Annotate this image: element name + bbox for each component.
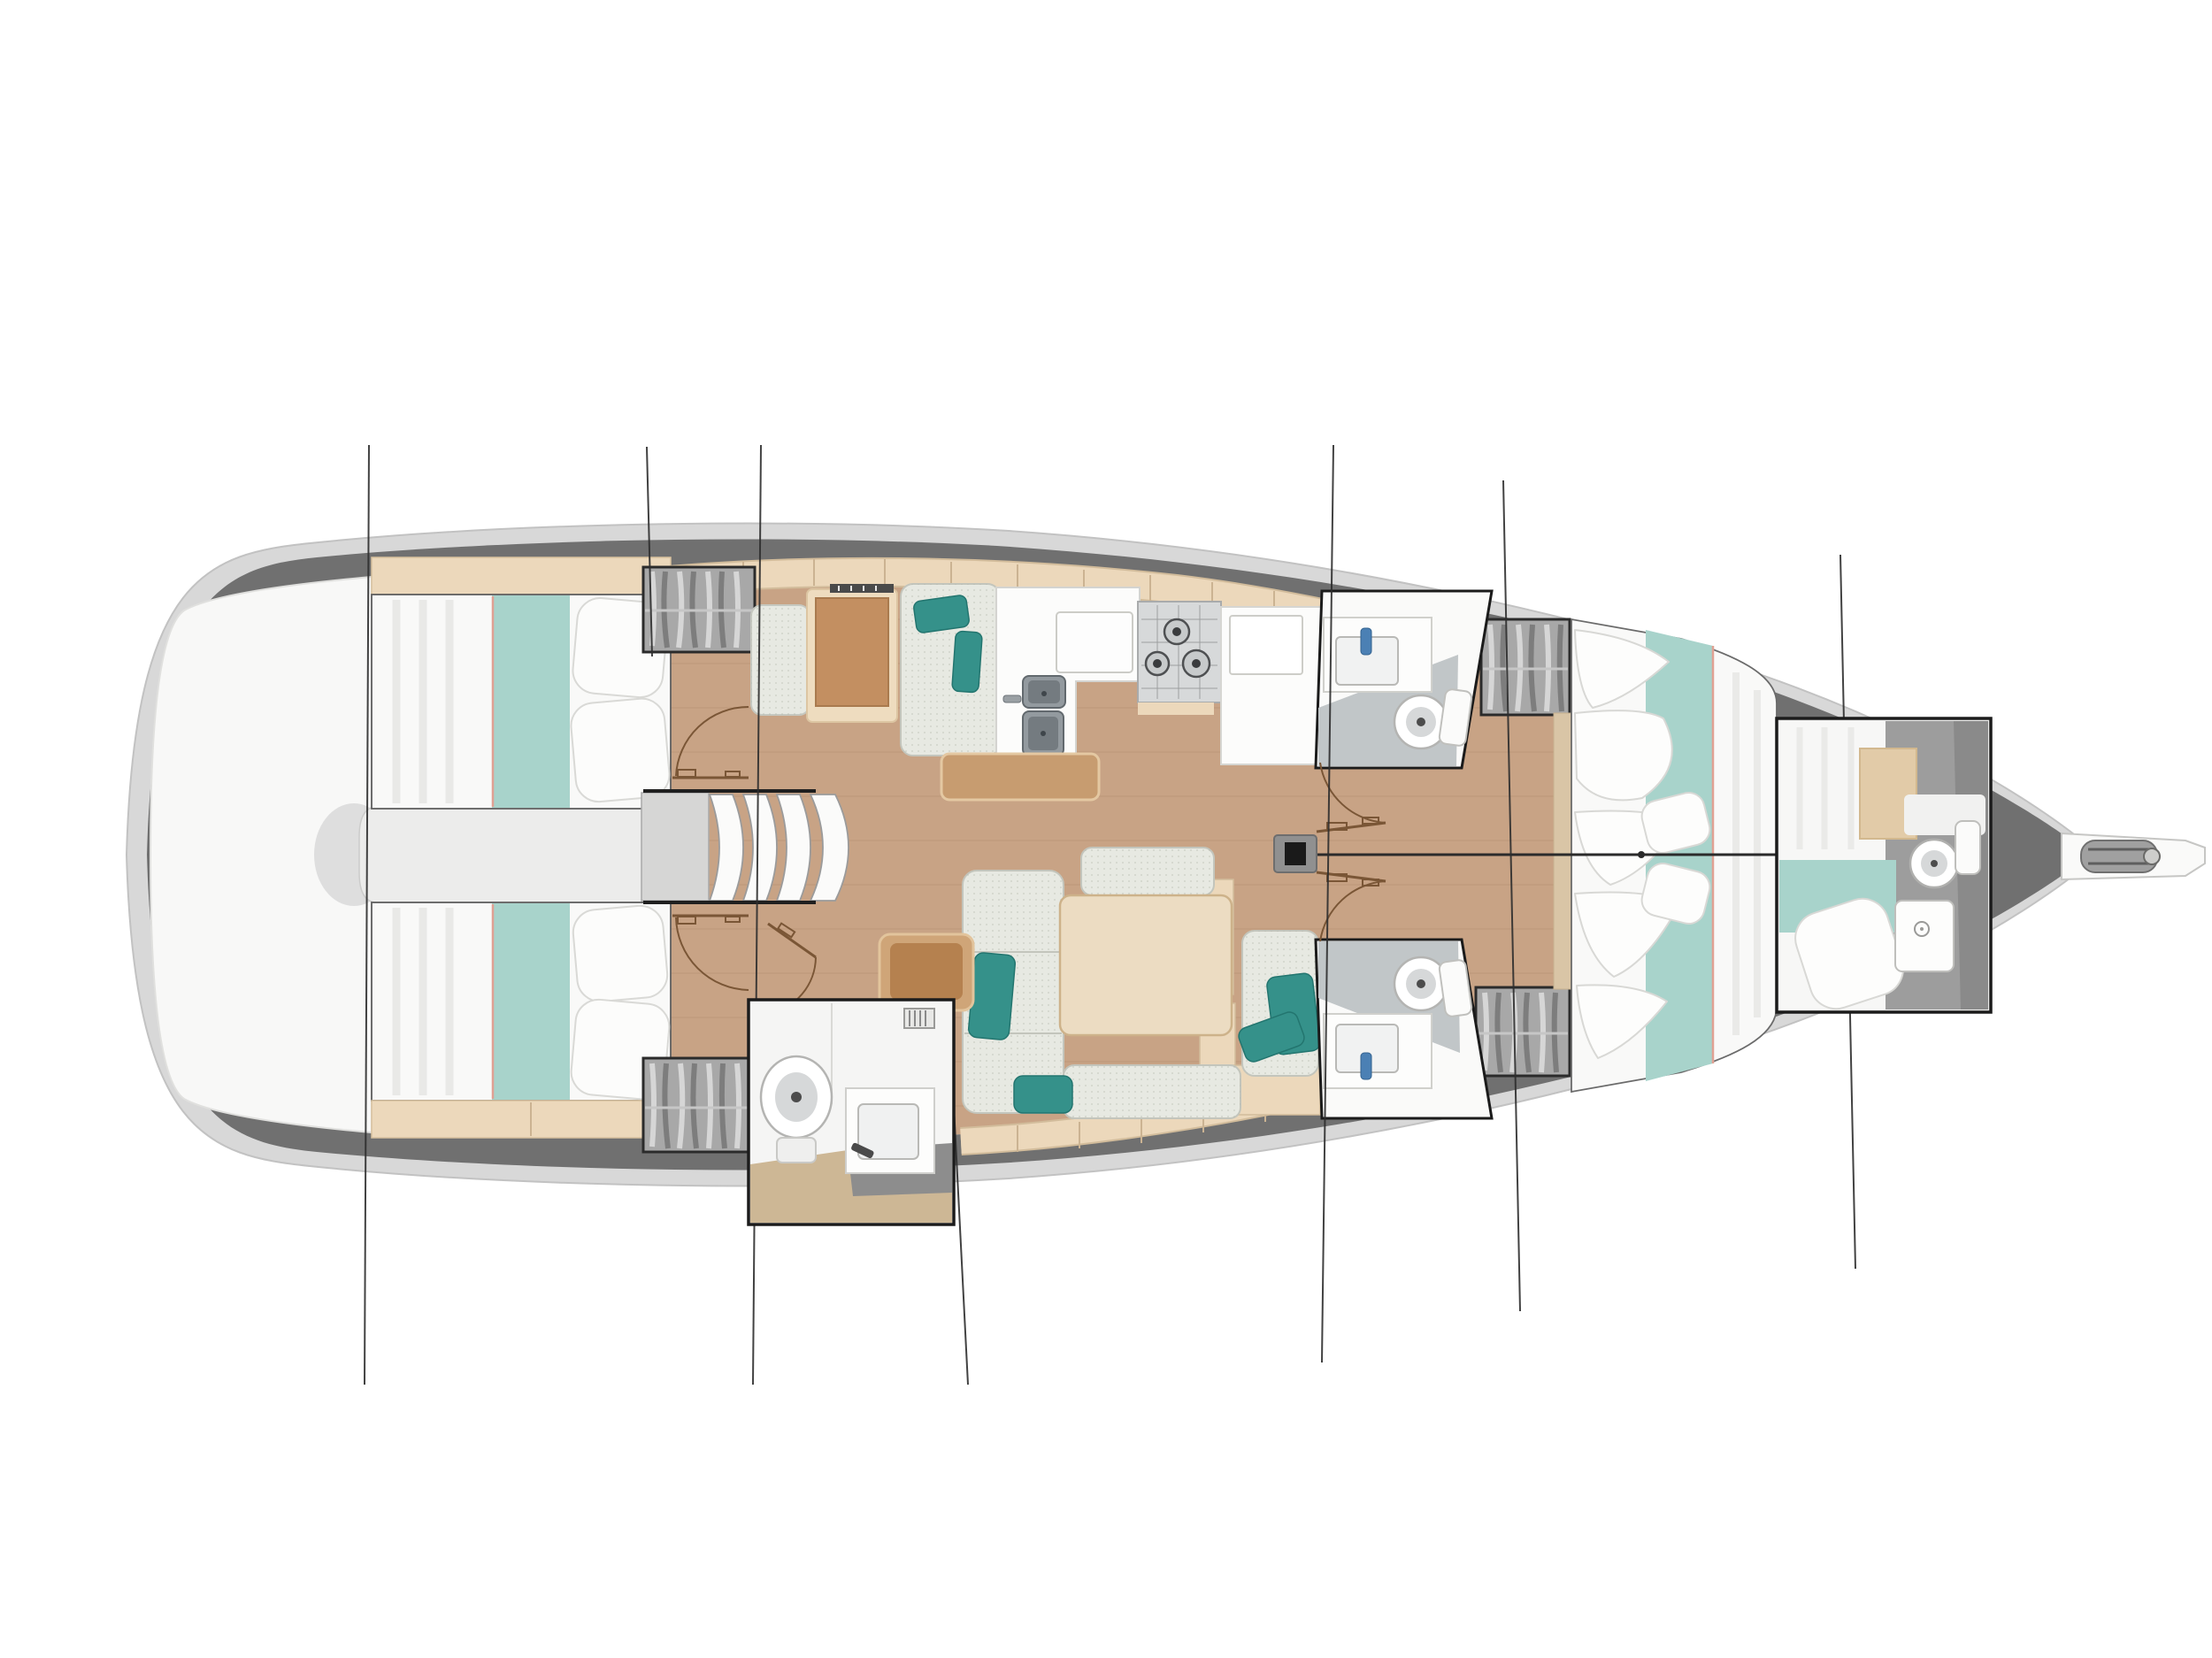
faucet — [1361, 628, 1371, 655]
stove — [1138, 602, 1221, 715]
aft-head-inset — [749, 1000, 954, 1224]
fridge-counter — [1221, 607, 1325, 764]
vent-grille — [904, 1009, 934, 1028]
teal-pillow — [968, 952, 1016, 1040]
wardrobe-forward-starboard — [1476, 987, 1570, 1076]
teal-pillow — [952, 631, 983, 693]
settee — [901, 584, 1000, 756]
chart-table — [816, 598, 888, 706]
mast — [1274, 835, 1317, 872]
anchor-roller — [2081, 841, 2160, 872]
wardrobe-aft-starboard — [643, 1058, 757, 1152]
bed-runner — [492, 595, 570, 808]
wardrobe-forward-port — [1481, 619, 1570, 715]
engine-space — [359, 807, 642, 902]
bed-runner — [492, 903, 570, 1100]
landing — [641, 793, 709, 901]
forward-cabin-bulkhead-shelf — [1554, 713, 1571, 989]
bowsprit — [2062, 833, 2205, 879]
sink — [846, 1088, 934, 1173]
yacht-floorplan — [0, 0, 2212, 1658]
page — [0, 0, 2212, 1658]
footboard-locker — [372, 1101, 671, 1138]
dining-table — [1060, 895, 1232, 1035]
bar-shelf — [941, 754, 1099, 800]
headboard-locker — [372, 557, 671, 595]
aft-cabin-port — [372, 557, 672, 809]
faucet — [1361, 1053, 1371, 1079]
teal-pillow — [1014, 1076, 1072, 1113]
galley-faucet — [1003, 695, 1021, 702]
aft-cabin-starboard — [372, 902, 672, 1138]
wardrobe-aft-port — [643, 567, 755, 652]
shower-pan — [1895, 901, 1954, 971]
counter-door — [1056, 612, 1133, 672]
teal-pillow — [913, 595, 970, 633]
nav-station — [751, 584, 897, 722]
head-forward-port — [1316, 591, 1492, 768]
head-forward-starboard — [1316, 940, 1492, 1118]
bow-ensuite-inset — [1777, 718, 1991, 1016]
